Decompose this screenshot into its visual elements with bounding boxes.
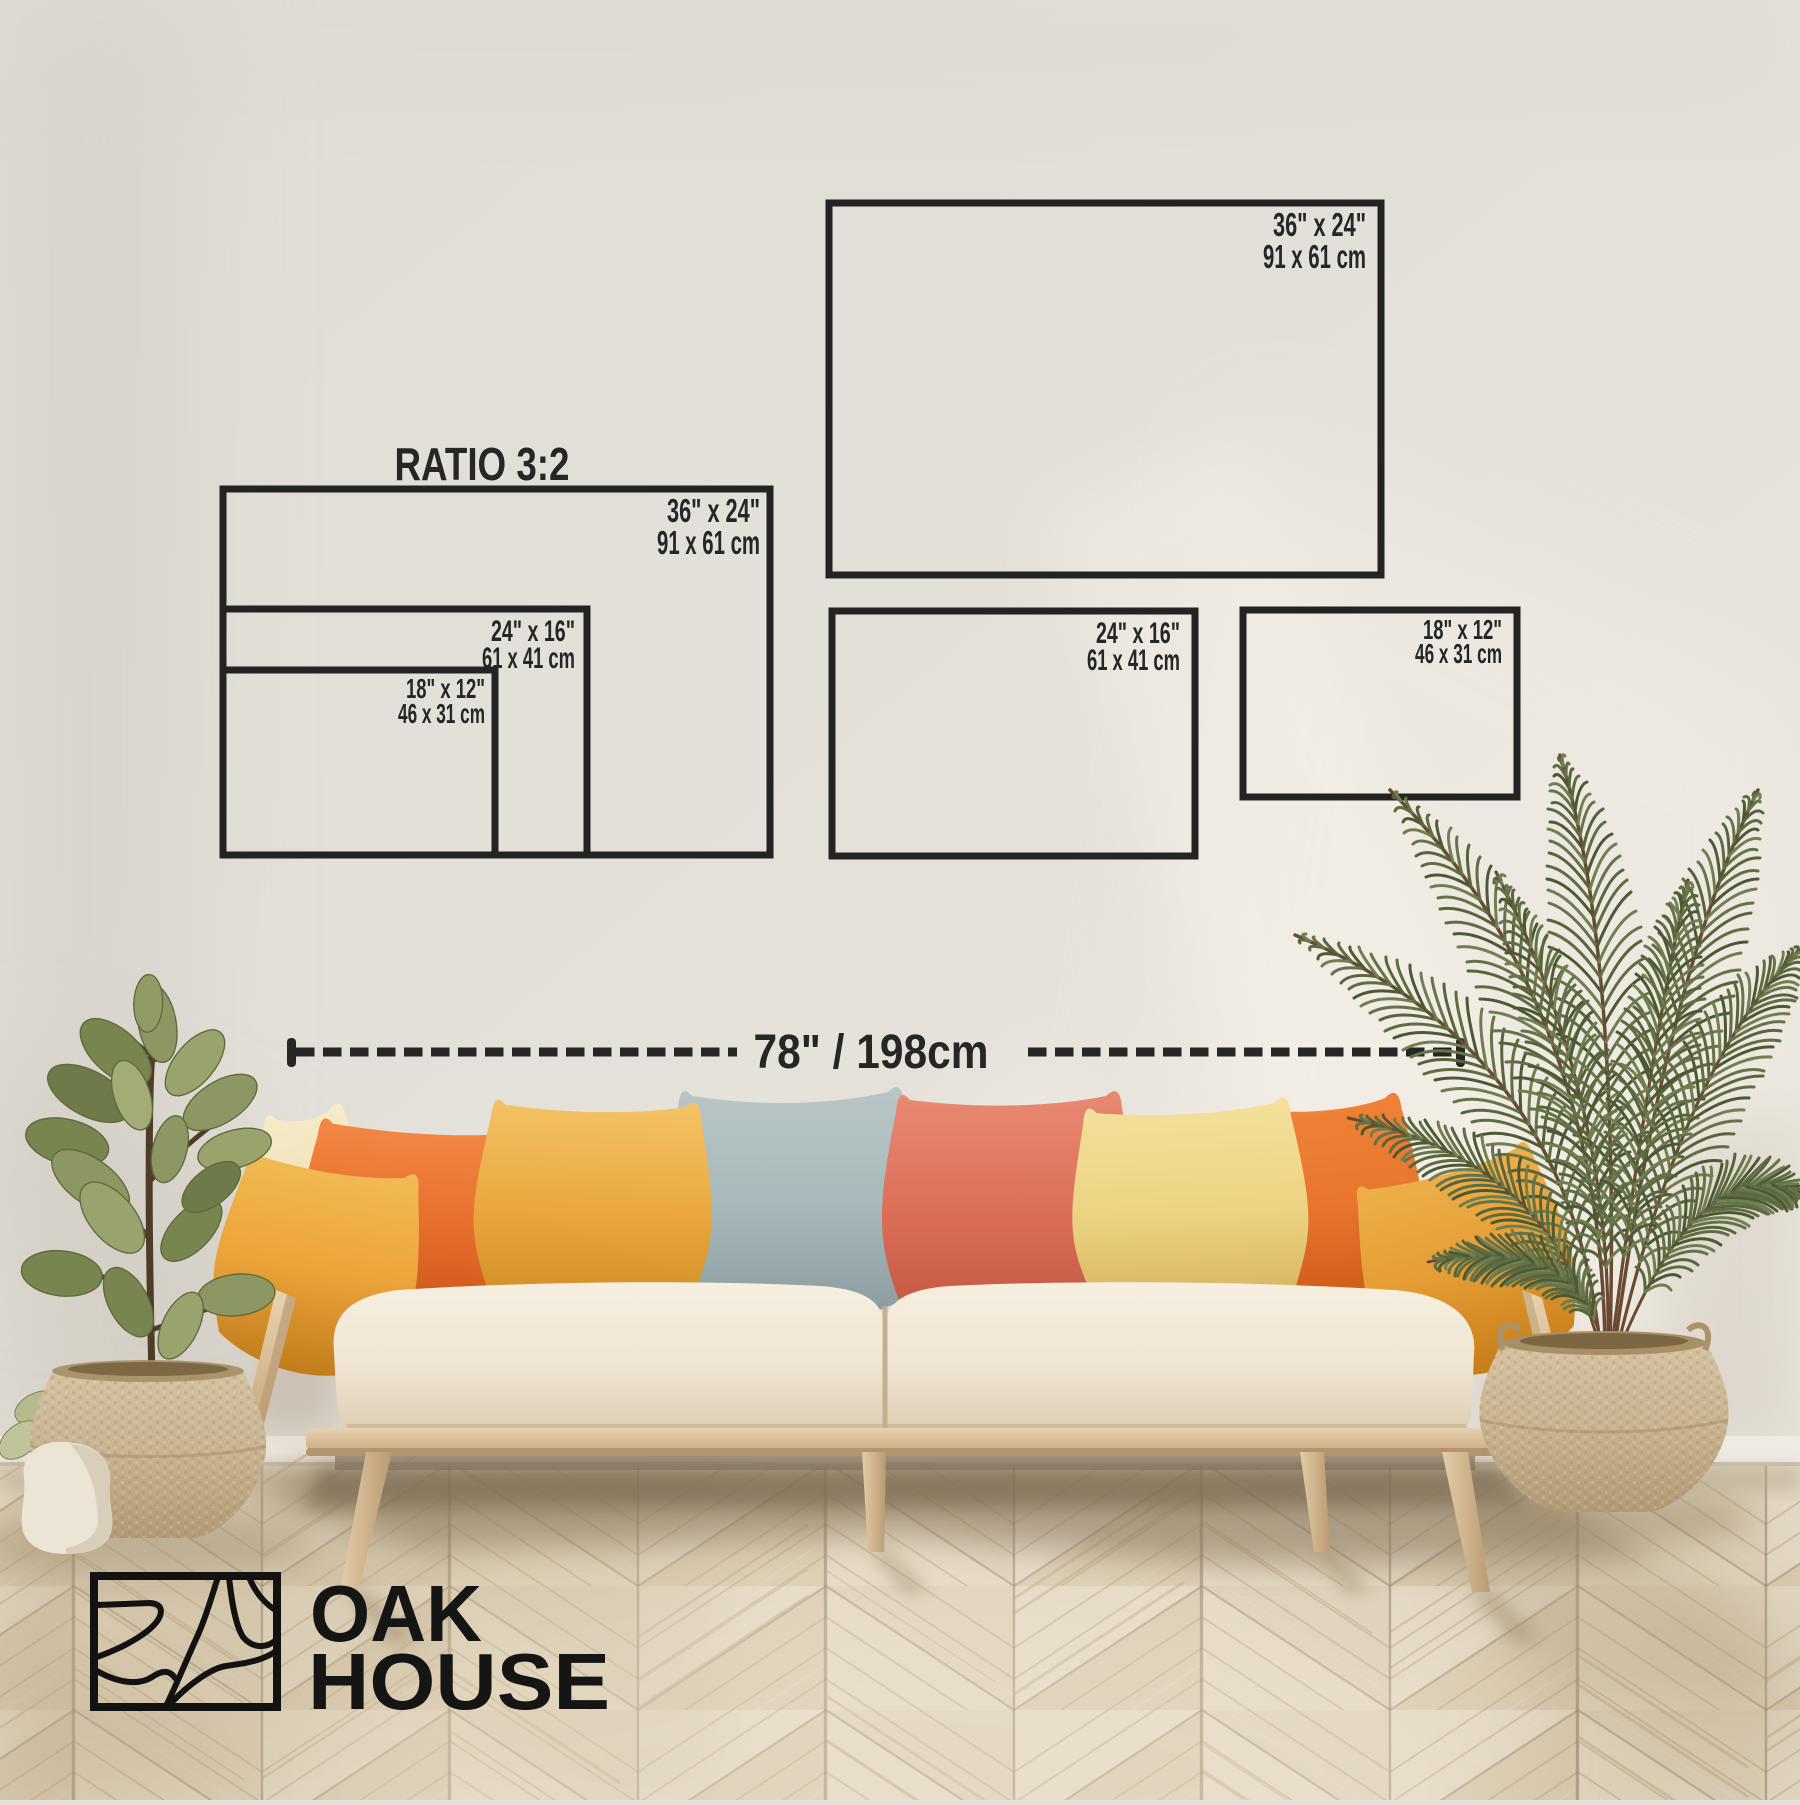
svg-text:91 x 61 cm: 91 x 61 cm	[657, 524, 760, 561]
svg-text:78" / 198cm: 78" / 198cm	[754, 1026, 989, 1079]
svg-text:61 x 41 cm: 61 x 41 cm	[1087, 644, 1180, 677]
svg-text:46 x 31 cm: 46 x 31 cm	[398, 698, 485, 729]
svg-text:46 x 31 cm: 46 x 31 cm	[1415, 638, 1502, 669]
svg-text:91 x 61 cm: 91 x 61 cm	[1263, 238, 1366, 275]
svg-text:HOUSE: HOUSE	[308, 1637, 610, 1726]
svg-text:RATIO 3:2: RATIO 3:2	[395, 438, 570, 490]
